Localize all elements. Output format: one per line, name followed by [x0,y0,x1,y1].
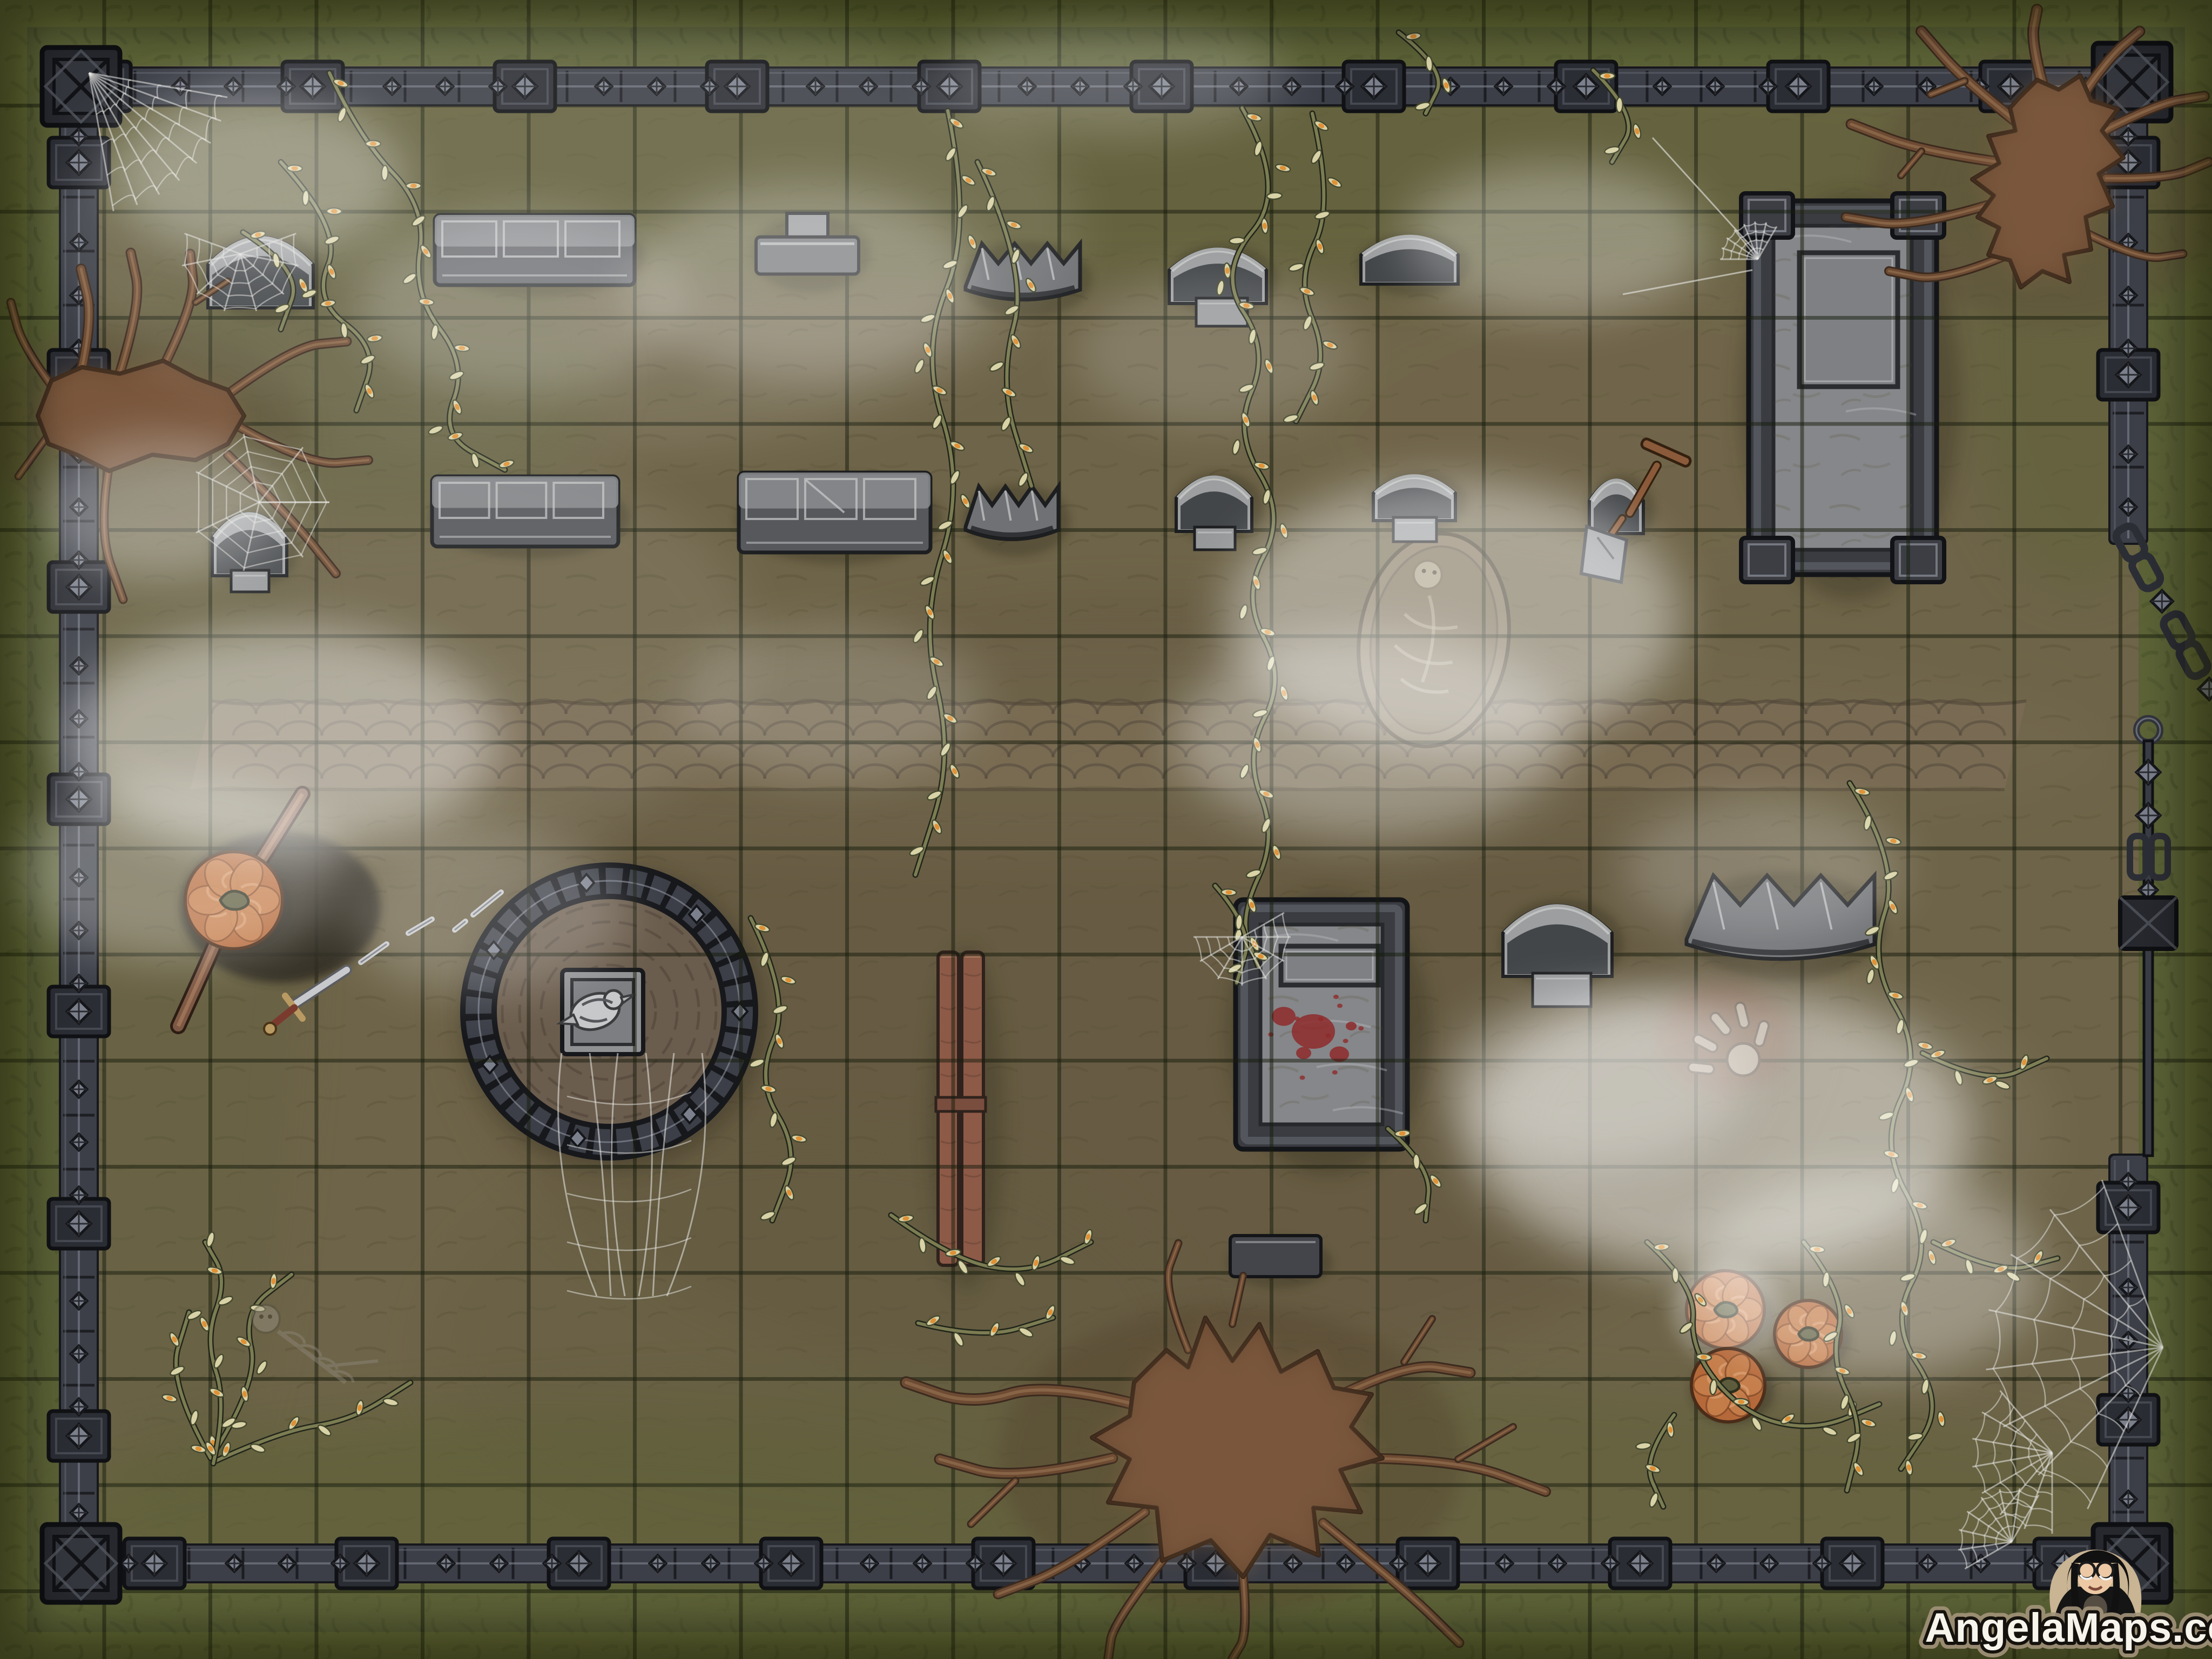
wooden-bench [929,945,1004,1291]
graveyard-map: AngelaMaps.com AngelaMaps.com AngelaMaps… [0,0,2212,1659]
gravestone-rubble [962,484,1070,557]
battlemap-canvas: AngelaMaps.com AngelaMaps.com AngelaMaps… [0,0,2212,1659]
map-art [0,0,2212,1659]
watermark-text: AngelaMaps.com [1925,1605,2212,1651]
tomb [1740,193,1960,601]
gravestone-wall2 [736,473,942,564]
